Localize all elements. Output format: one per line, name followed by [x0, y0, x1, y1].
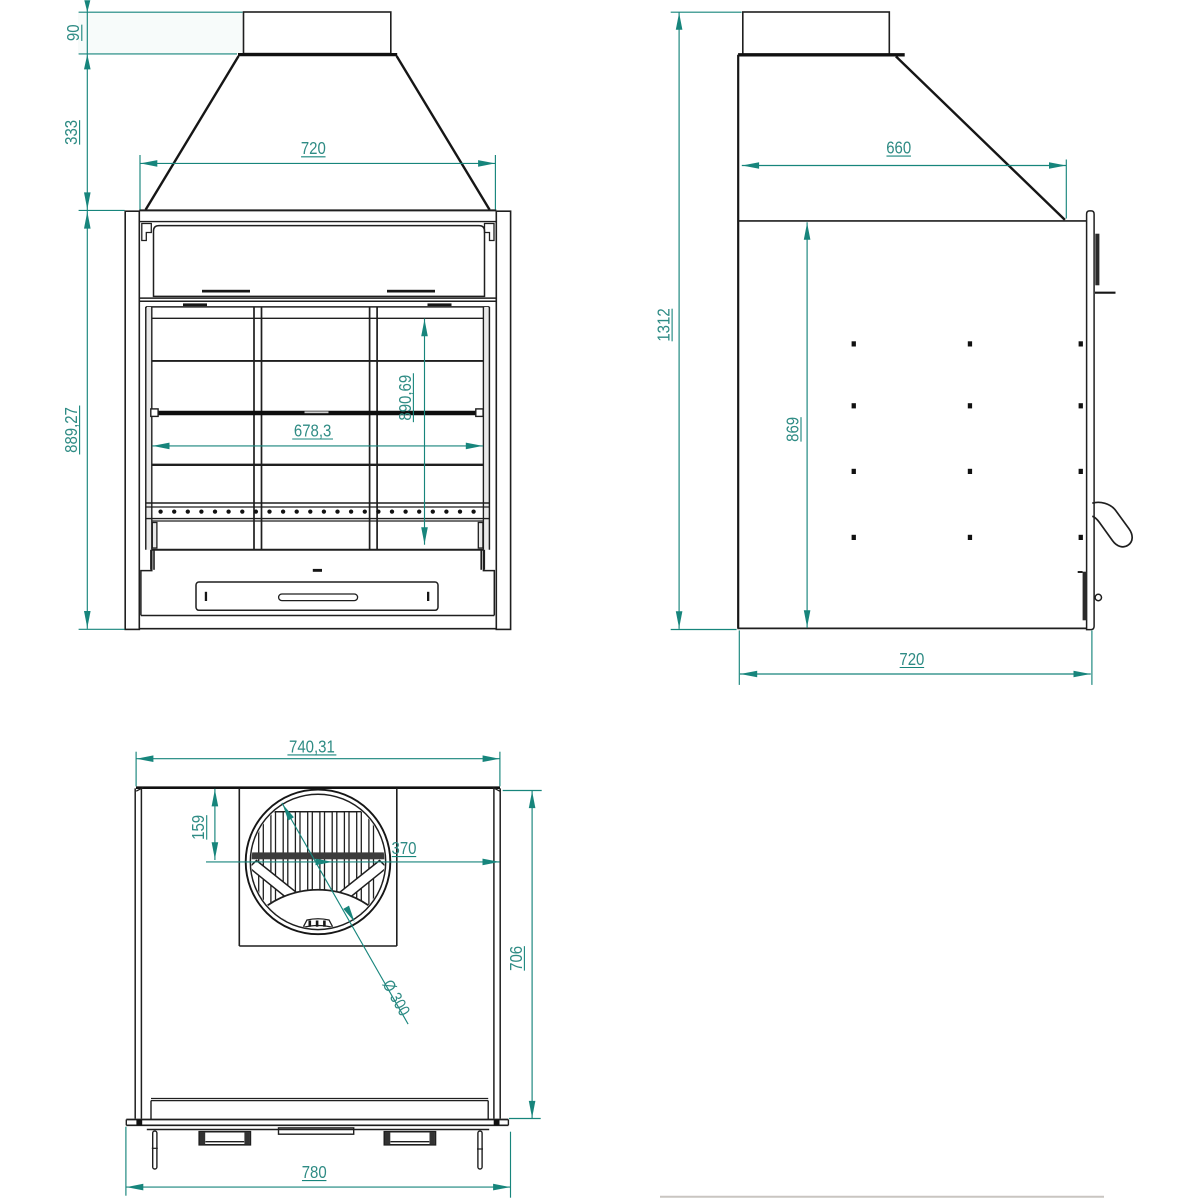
- svg-text:869: 869: [783, 417, 802, 442]
- svg-text:889,27: 889,27: [62, 407, 81, 453]
- svg-text:720: 720: [899, 650, 924, 669]
- svg-text:678,3: 678,3: [294, 421, 331, 440]
- svg-text:159: 159: [189, 815, 208, 840]
- svg-text:780: 780: [302, 1163, 327, 1182]
- svg-text:1312: 1312: [655, 308, 674, 341]
- svg-text:720: 720: [301, 139, 326, 158]
- svg-text:706: 706: [507, 946, 526, 971]
- svg-text:740,31: 740,31: [289, 737, 335, 756]
- svg-text:90: 90: [64, 24, 83, 41]
- svg-text:660: 660: [886, 139, 911, 158]
- svg-text:370: 370: [392, 839, 417, 858]
- svg-text:333: 333: [62, 120, 81, 145]
- svg-text:890,69: 890,69: [396, 375, 415, 421]
